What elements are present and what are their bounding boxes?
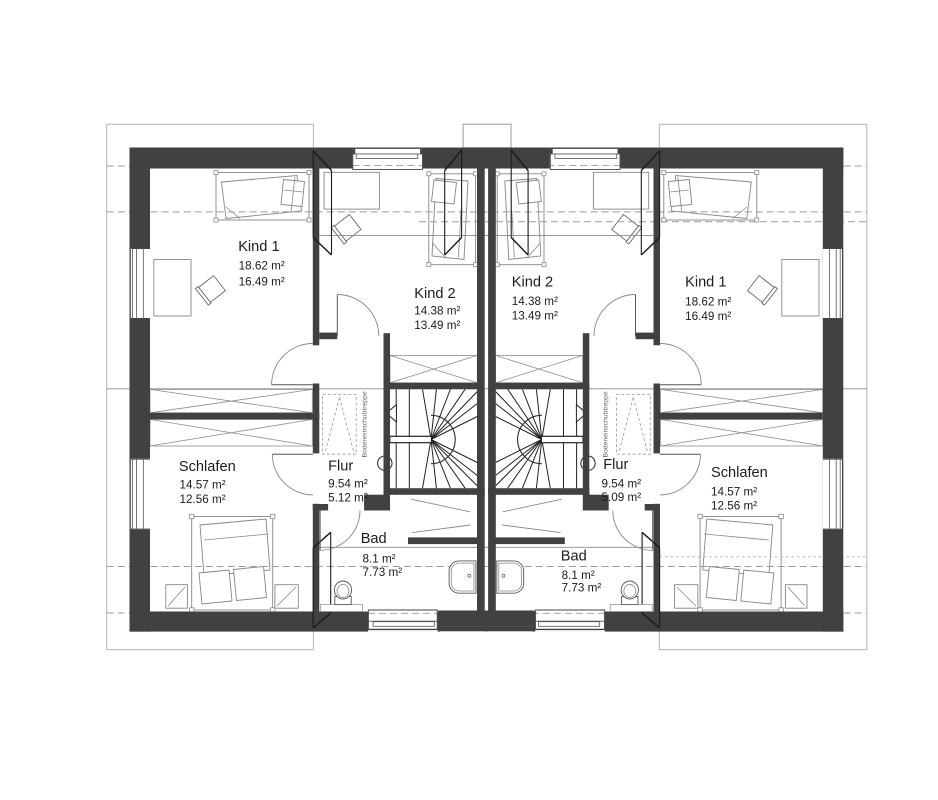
- svg-text:Kind 2: Kind 2: [512, 275, 553, 291]
- svg-text:12.56 m²: 12.56 m²: [711, 500, 757, 513]
- svg-text:Bad: Bad: [561, 548, 587, 564]
- svg-text:5.09 m²: 5.09 m²: [602, 491, 642, 504]
- svg-text:Kind 1: Kind 1: [685, 275, 726, 291]
- svg-text:5.12 m²: 5.12 m²: [328, 492, 368, 505]
- svg-text:Schlafen: Schlafen: [179, 459, 236, 475]
- svg-text:8.1 m²: 8.1 m²: [562, 569, 595, 582]
- svg-text:13.49 m²: 13.49 m²: [414, 319, 460, 332]
- svg-text:16.49 m²: 16.49 m²: [685, 310, 731, 323]
- svg-text:9.54 m²: 9.54 m²: [602, 477, 642, 490]
- svg-text:Flur: Flur: [328, 458, 353, 474]
- svg-text:12.56 m²: 12.56 m²: [180, 493, 226, 506]
- svg-text:Bodeneinschubtreppe: Bodeneinschubtreppe: [362, 391, 369, 457]
- svg-text:Schlafen: Schlafen: [711, 465, 768, 481]
- svg-text:7.73 m²: 7.73 m²: [363, 566, 403, 579]
- svg-text:14.38 m²: 14.38 m²: [414, 305, 460, 318]
- svg-text:9.54 m²: 9.54 m²: [328, 477, 368, 490]
- svg-text:Flur: Flur: [603, 457, 628, 473]
- svg-text:14.38 m²: 14.38 m²: [512, 295, 558, 308]
- svg-text:7.73 m²: 7.73 m²: [562, 581, 602, 594]
- svg-text:14.57 m²: 14.57 m²: [180, 479, 226, 492]
- svg-text:13.49 m²: 13.49 m²: [512, 309, 558, 322]
- svg-text:14.57 m²: 14.57 m²: [711, 486, 757, 499]
- svg-text:Bodeneinschubtreppe: Bodeneinschubtreppe: [602, 391, 609, 457]
- svg-text:Bad: Bad: [361, 531, 387, 547]
- svg-text:16.49 m²: 16.49 m²: [239, 275, 285, 288]
- svg-text:18.62 m²: 18.62 m²: [685, 295, 731, 308]
- svg-text:Kind 1: Kind 1: [238, 239, 279, 255]
- svg-text:18.62 m²: 18.62 m²: [239, 259, 285, 272]
- svg-text:Kind 2: Kind 2: [414, 286, 455, 302]
- svg-text:8.1 m²: 8.1 m²: [363, 552, 396, 565]
